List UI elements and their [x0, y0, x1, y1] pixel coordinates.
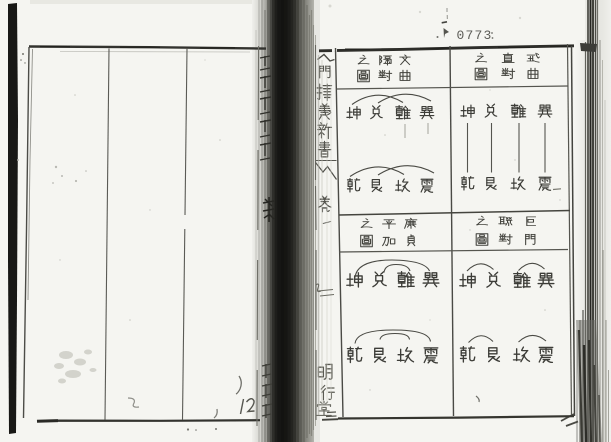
svg-text:0773: 0773 — [457, 28, 493, 43]
